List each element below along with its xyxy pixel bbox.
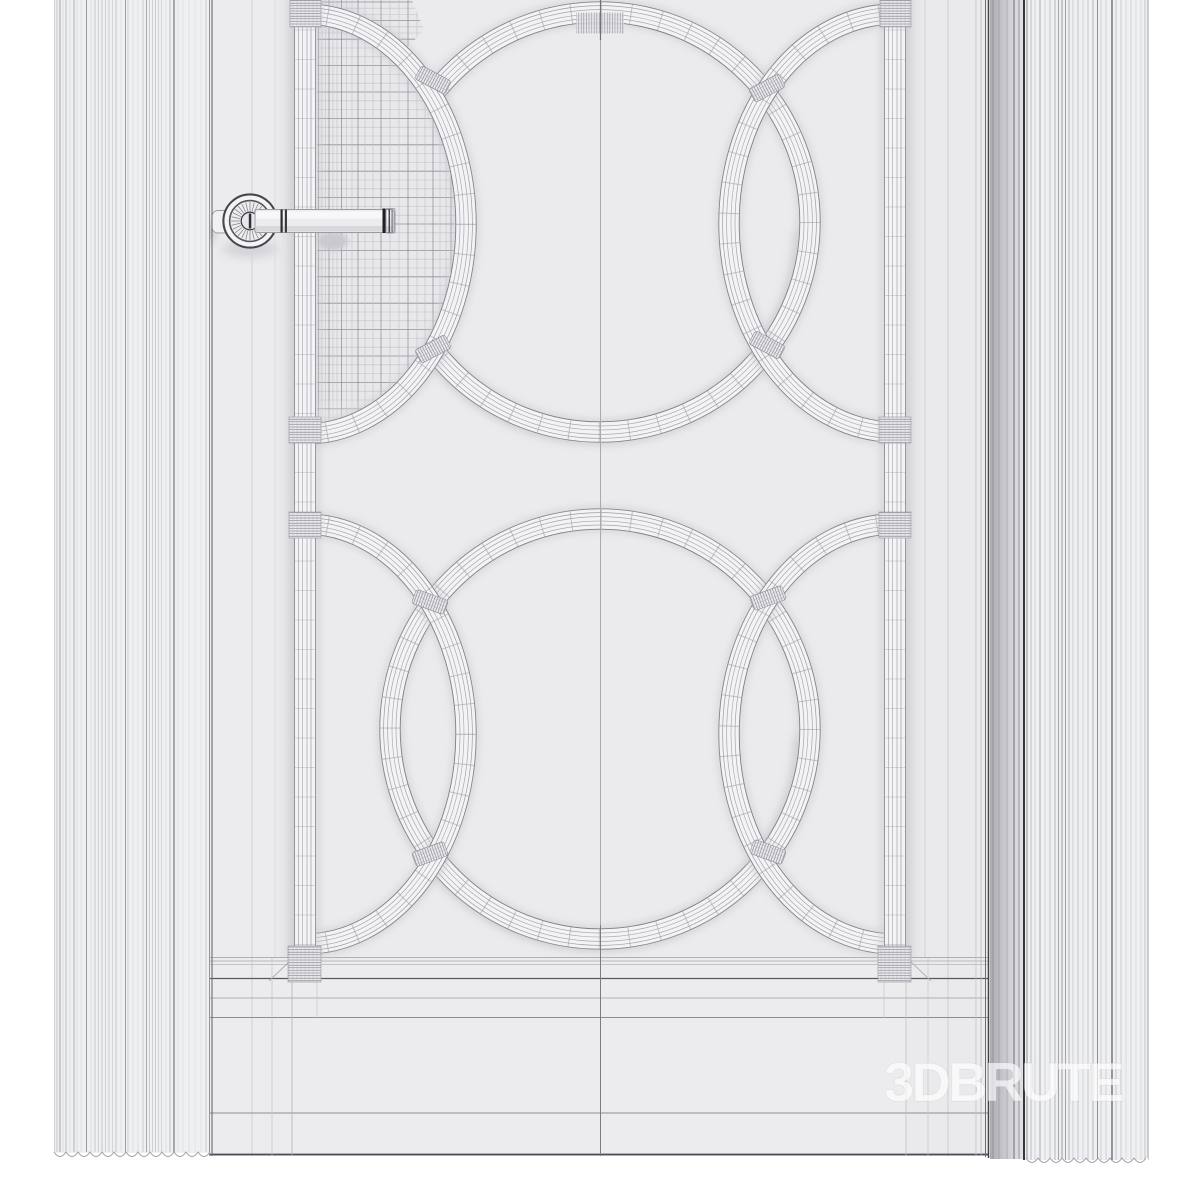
svg-text:3DBRUTE: 3DBRUTE xyxy=(884,1052,1123,1113)
